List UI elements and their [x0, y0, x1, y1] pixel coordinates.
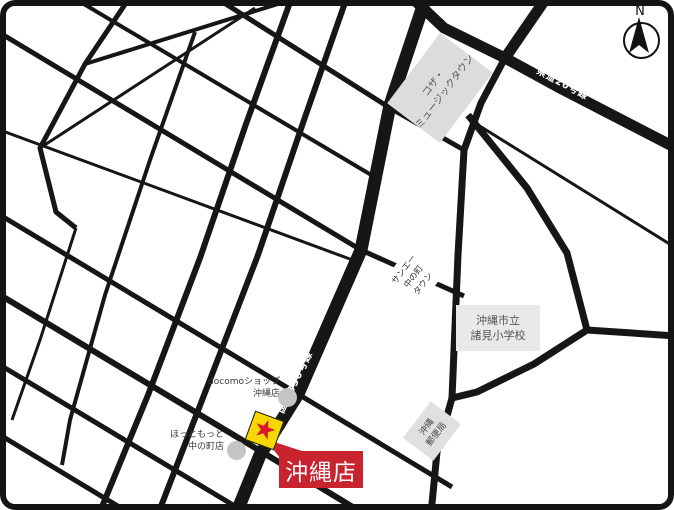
road-cross-h8 [0, 435, 126, 510]
compass-north-label: N [618, 4, 662, 19]
road-cross-h5 [0, 215, 452, 487]
hottomotto-line2: 中の町店 [188, 442, 224, 452]
docomo-shop-line1: docomoショップ [208, 377, 280, 387]
docomo-shop-dot [278, 388, 297, 407]
road-northwest-curve [40, 0, 132, 228]
street-map-canvas: 国道330号線 県道20号線 [0, 0, 674, 510]
compass: N [618, 4, 662, 60]
compass-ring-icon [623, 22, 660, 59]
star-icon: ★ [249, 413, 280, 445]
school-line1: 沖縄市立 [476, 313, 520, 328]
road-east-b [468, 115, 587, 330]
store-location-map: 国道330号線 県道20号線 コザ・ ミュージックタウン 沖縄市立 諸見小学校 … [0, 0, 674, 510]
hottomotto-label: ほっともっと 中の町店 [156, 429, 224, 453]
hottomotto-line1: ほっともっと [170, 430, 224, 440]
store-callout: 沖縄店 [279, 451, 363, 488]
moromi-elementary-school-label: 沖縄市立 諸見小学校 [456, 305, 540, 351]
docomo-shop-line2: 沖縄店 [253, 389, 280, 399]
road-east-b-branch [587, 330, 674, 336]
road-cross-h2 [67, 0, 378, 179]
school-line2: 諸見小学校 [471, 328, 526, 343]
hottomotto-dot [227, 441, 246, 460]
docomo-shop-label: docomoショップ 沖縄店 [196, 376, 280, 400]
road-north-spur [505, 0, 549, 58]
road-east-minor [470, 120, 674, 248]
